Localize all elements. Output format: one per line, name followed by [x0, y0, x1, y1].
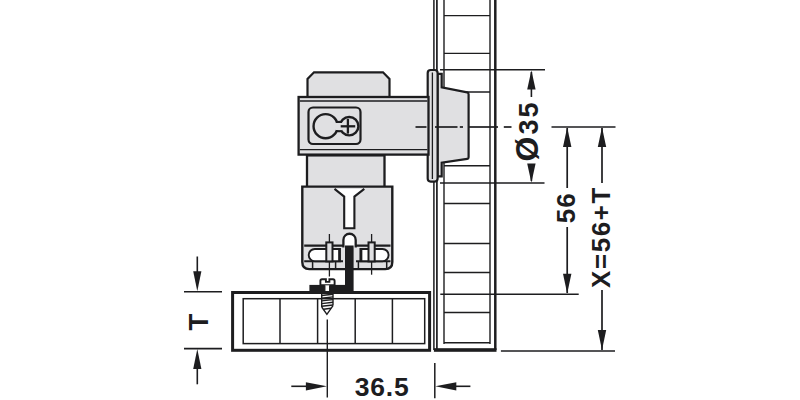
- svg-text:Ø35: Ø35: [509, 101, 545, 162]
- svg-text:56: 56: [551, 192, 581, 223]
- svg-text:X=56+T: X=56+T: [586, 186, 616, 288]
- svg-text:36.5: 36.5: [355, 372, 410, 400]
- svg-text:T: T: [183, 314, 214, 331]
